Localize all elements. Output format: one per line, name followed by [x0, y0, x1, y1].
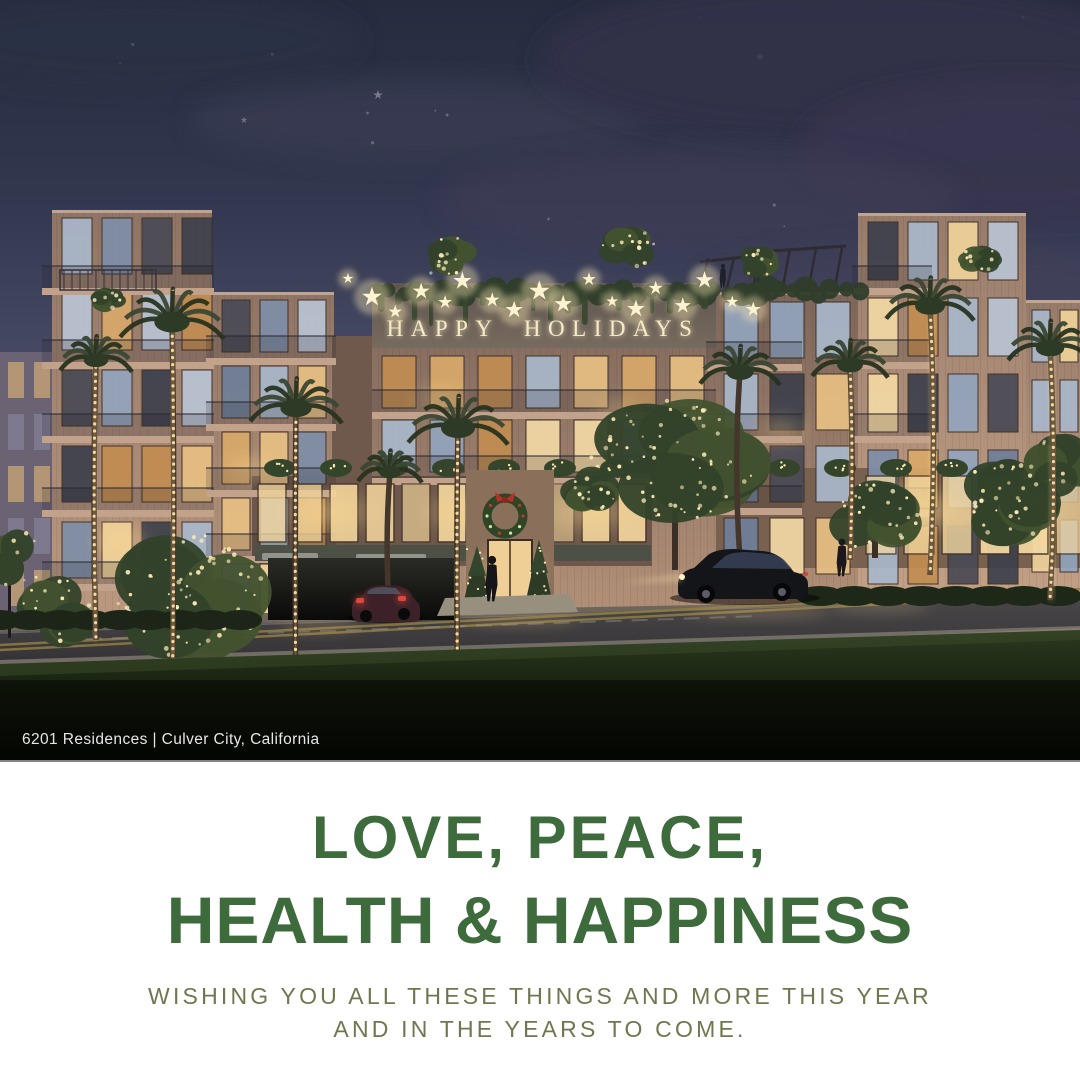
happy-holidays-sign: HAPPY HOLIDAYS HAPPY HOLIDAYS [387, 316, 700, 341]
photo-bottom-divider [0, 760, 1080, 762]
subheading-line2: AND IN THE YEARS TO COME. [0, 1013, 1080, 1046]
heading-line2: HEALTH & HAPPINESS [0, 874, 1080, 966]
greeting-message: LOVE, PEACE, HEALTH & HAPPINESS WISHING … [0, 762, 1080, 1080]
subheading-line1: WISHING YOU ALL THESE THINGS AND MORE TH… [0, 980, 1080, 1013]
building-photo: HAPPY HOLIDAYS HAPPY HOLIDAYS 6201 Resid… [0, 0, 1080, 762]
photo-caption: 6201 Residences | Culver City, Californi… [22, 731, 320, 748]
heading-line1: LOVE, PEACE, [0, 802, 1080, 874]
sign-text: HAPPY HOLIDAYS [387, 316, 700, 341]
holiday-card: HAPPY HOLIDAYS HAPPY HOLIDAYS 6201 Resid… [0, 0, 1080, 1080]
